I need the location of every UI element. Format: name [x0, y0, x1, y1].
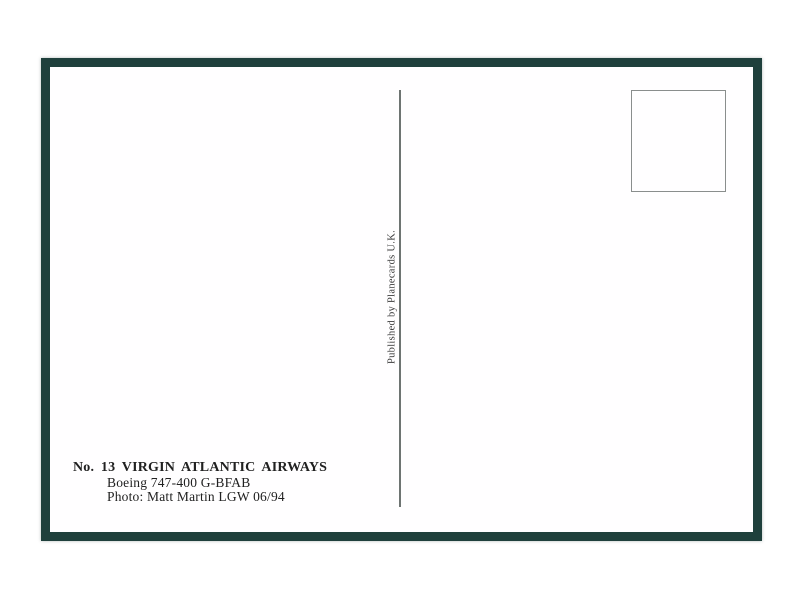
stamp-box [631, 90, 726, 192]
publisher-credit: Published by Planecards U.K. [387, 230, 398, 364]
caption-photo-credit: Photo: Matt Martin LGW 06/94 [107, 490, 327, 505]
scanned-postcard-page: Published by Planecards U.K. No. 13 VIRG… [0, 0, 800, 600]
caption-title: No. 13 VIRGIN ATLANTIC AIRWAYS [73, 461, 327, 476]
address-divider-line [399, 90, 401, 507]
caption-aircraft: Boeing 747-400 G-BFAB [107, 476, 327, 491]
postcard-back: Published by Planecards U.K. No. 13 VIRG… [41, 58, 762, 541]
caption-block: No. 13 VIRGIN ATLANTIC AIRWAYS Boeing 74… [73, 461, 327, 505]
